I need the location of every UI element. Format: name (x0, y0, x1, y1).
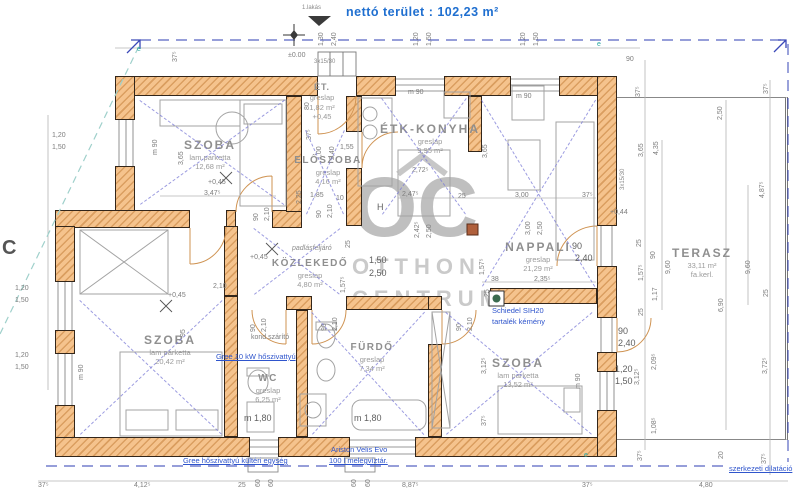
dim-label: 2,47⁵ (402, 191, 419, 198)
room-label-line: 1,82 m² (309, 103, 334, 112)
room-label-line: greslap (380, 137, 480, 146)
dim-label: 2,09⁵ (651, 353, 658, 370)
dim-label: 3,00 (525, 221, 532, 235)
room-label-line: 6,25 m² (255, 395, 280, 404)
dim-label: 3,12⁵ (634, 368, 641, 385)
dim-label: 1,57⁵ (479, 258, 486, 275)
room-label-line: NAPPALI (505, 240, 571, 255)
dim-label: 2,50 (426, 224, 433, 238)
equipment-note: 100 l melegvíztár. (329, 457, 388, 465)
dim-label: 3x15/30 (314, 59, 335, 65)
dim-label: m 90 (152, 139, 159, 155)
dim-label: 2,10 (332, 317, 339, 331)
dim-label: 25 (345, 240, 352, 248)
dim-label: 3x15/30 (620, 169, 626, 190)
net-area-title: nettó terület : 102,23 m² (346, 6, 499, 19)
room-label-line: greslap (505, 255, 571, 264)
dim-label: 37⁵ (761, 453, 768, 464)
equipment-note: Schiedel SIH20 (492, 307, 544, 315)
room-label-line: 33,11 m² (672, 261, 732, 270)
dim-label: 38 (491, 276, 499, 283)
dim-label: 2,50 (537, 221, 544, 235)
dim-label: kond.szárító (251, 334, 289, 341)
dim-label: 1,20 (52, 132, 66, 139)
dim-label: m 1,80 (244, 414, 272, 423)
dim-label: 37⁵ (172, 51, 179, 62)
room-label-line: 21,29 m² (505, 264, 571, 273)
dim-label: 3,65 (638, 143, 645, 157)
dim-label: 37⁵ (635, 86, 642, 97)
dim-label: 2,40 (331, 32, 338, 46)
dim-label: 1,50 (15, 297, 29, 304)
dim-label: 2,10 (467, 317, 474, 331)
room-label-nappali: NAPPALIgreslap21,29 m² (505, 240, 571, 274)
dim-label: 25 (238, 482, 246, 489)
dim-label: m 90 (408, 89, 424, 96)
room-label-line: TERASZ (672, 246, 732, 261)
dim-label: 90 (618, 327, 628, 336)
equipment-note: Ariston Velis Evo (331, 446, 387, 454)
dim-label: e (584, 452, 588, 459)
dim-label: 2,42⁵ (414, 221, 421, 238)
dim-label: 8,87⁵ (402, 482, 419, 489)
dim-label: 6,90 (718, 298, 725, 312)
dim-label: 37⁵ (38, 482, 49, 489)
room-label-line: ÉTK-KONYHA (380, 122, 480, 137)
dim-label: 2,10 (327, 204, 334, 218)
dim-label: 60 (365, 479, 372, 487)
dim-label: 3,72⁵ (762, 357, 769, 374)
dim-label: 37⁵ (582, 192, 593, 199)
room-label-line: +0,45 (309, 112, 334, 121)
dim-label: C (2, 238, 16, 258)
dim-label: 4,12⁵ (134, 482, 151, 489)
room-label-line: greslap (294, 168, 362, 177)
dim-label: 4,87⁵ (759, 181, 766, 198)
dim-label: +0,45 (208, 179, 226, 186)
equipment-note: tartalék kémény (492, 318, 545, 326)
dim-label: 1,50 (615, 377, 633, 386)
dim-label: 90 (626, 56, 634, 63)
dim-label: 90 (316, 210, 323, 218)
room-label-line: KÖZLEKEDŐ (272, 258, 348, 271)
dim-label: 2,35⁵ (534, 276, 551, 283)
dim-label: 3,47⁵ (204, 190, 221, 197)
room-label-line: WC (255, 373, 280, 386)
room-label-line: ÉT. (309, 82, 334, 93)
dim-label: m 90 (575, 373, 582, 389)
equipment-note: Gree 10 kW hőszivattyú (216, 353, 296, 361)
dim-label: 1,30 (318, 32, 325, 46)
dim-label: 25 (458, 193, 466, 200)
dim-label: +0,45 (250, 254, 268, 261)
dim-label: 1,20 (15, 285, 29, 292)
room-label-etk-konyha: ÉTK-KONYHAgreslap9,95 m² (380, 122, 480, 156)
dim-label: 1,20 (15, 352, 29, 359)
dim-label: 2,10 (264, 207, 271, 221)
dim-label: 1,50 (426, 32, 433, 46)
dim-label: 1,17 (652, 287, 659, 301)
dim-label: +0,44 (610, 209, 628, 216)
dim-label: 1,57⁵ (638, 264, 645, 281)
dim-label: ±0.00 (288, 52, 305, 59)
dim-label: 60 (268, 479, 275, 487)
room-label-line: fa.kerl. (672, 270, 732, 279)
dim-label: 1,50 (533, 32, 540, 46)
dim-label: 25 (636, 239, 643, 247)
dim-label: 37⁵ (481, 415, 488, 426)
dim-label: 37⁵ (582, 482, 593, 489)
dim-label: 1,50 (15, 364, 29, 371)
dim-label: 1,20 (615, 365, 633, 374)
room-label-line: greslap (309, 93, 334, 102)
dim-label: H (377, 203, 384, 212)
dim-label: 60 (255, 479, 262, 487)
dim-label: 9,60 (665, 260, 672, 274)
dim-label: m 90 (516, 93, 532, 100)
dim-label: 2,50 (717, 106, 724, 120)
room-label-terasz: TERASZ33,11 m²fa.kerl. (672, 246, 732, 280)
dim-label: 9,60 (745, 260, 752, 274)
dim-label: e (597, 41, 601, 48)
room-label-line: greslap (255, 386, 280, 395)
dim-label: 2,10 (213, 283, 227, 290)
dim-label: 1,50 (369, 256, 387, 265)
dim-label: 25 (763, 289, 770, 297)
dim-label: 60 (351, 479, 358, 487)
dim-label: +0,45 (168, 292, 186, 299)
equipment-note: Gree hőszivattyú kültéri egység (183, 457, 288, 465)
dim-label: 1,20 (520, 32, 527, 46)
dim-label: 1,50 (52, 144, 66, 151)
dim-label: 25 (638, 308, 645, 316)
floor-plan: OC OTTHON CENTRUM (0, 0, 800, 494)
dim-label: m 90 (78, 364, 85, 380)
dim-label: 1,55 (340, 144, 354, 151)
unit-label: 1.lakás (302, 5, 321, 11)
dim-label: 90 (253, 213, 260, 221)
dim-label: 90 (250, 324, 257, 332)
dim-label: 37⁵ (637, 450, 644, 461)
dim-label: 20 (718, 451, 725, 459)
room-label-line: 4,80 m² (272, 280, 348, 289)
dim-label: 3,65 (482, 144, 489, 158)
dim-label: 3,00 (515, 192, 529, 199)
dim-label: 37⁵ (763, 83, 770, 94)
room-label-kozlekedo: KÖZLEKEDŐgreslap4,80 m² (272, 258, 348, 289)
room-label-et: ÉT.greslap1,82 m²+0,45 (309, 82, 334, 121)
dim-label: 25 (484, 289, 491, 297)
dim-label: 2,50 (369, 269, 387, 278)
dim-label: 1,20 (413, 32, 420, 46)
room-label-line: SZOBA (144, 333, 196, 348)
dim-label: 2,10 (261, 318, 268, 332)
dim-label: 2,40 (618, 339, 636, 348)
dim-label: 3,12⁵ (481, 357, 488, 374)
dim-label: 90 (650, 251, 657, 259)
dim-label: e (137, 46, 141, 53)
dim-label: 4,80 (699, 482, 713, 489)
dim-label: 4,35 (653, 141, 660, 155)
dim-label: 2,25 (296, 190, 303, 204)
room-label-wc: WCgreslap6,25 m² (255, 373, 280, 404)
dim-label: 1,08⁵ (651, 417, 658, 434)
dim-label: m 1,80 (354, 414, 382, 423)
equipment-note: szerkezeti dilatáció (729, 465, 792, 473)
